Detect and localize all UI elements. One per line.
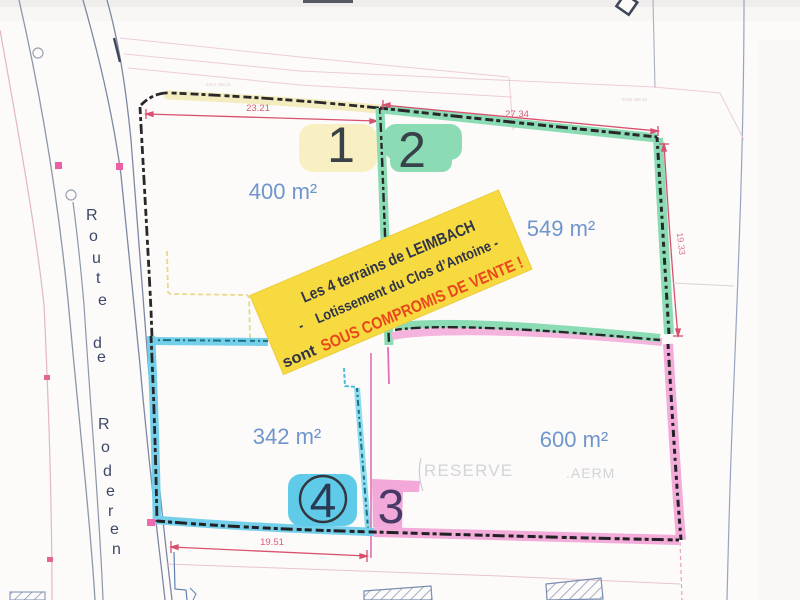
svg-text:o: o xyxy=(101,439,110,456)
svg-text:23.21: 23.21 xyxy=(246,103,270,114)
svg-text:e: e xyxy=(97,349,106,366)
svg-text:342 m²: 342 m² xyxy=(253,424,321,449)
svg-text:1: 1 xyxy=(327,117,355,173)
svg-text:600 m²: 600 m² xyxy=(540,427,608,452)
svg-text:e: e xyxy=(106,483,115,500)
svg-text:R: R xyxy=(86,207,98,224)
svg-text:27.34: 27.34 xyxy=(505,109,529,120)
svg-text:n: n xyxy=(112,541,121,558)
svg-text:t: t xyxy=(96,270,101,287)
svg-text:4: 4 xyxy=(310,475,337,528)
svg-text:u: u xyxy=(92,250,101,267)
svg-text:19.51: 19.51 xyxy=(260,537,284,548)
svg-text:e: e xyxy=(98,292,107,309)
svg-text:5414 358.21: 5414 358.21 xyxy=(206,82,232,87)
svg-text:3: 3 xyxy=(378,481,405,534)
svg-text:549 m²: 549 m² xyxy=(527,216,595,241)
svg-text:R: R xyxy=(98,416,110,433)
svg-text:e: e xyxy=(110,521,119,538)
svg-text:400 m²: 400 m² xyxy=(249,179,317,204)
svg-text:o: o xyxy=(89,228,98,245)
svg-text:RESERVE: RESERVE xyxy=(424,461,513,480)
svg-text:r: r xyxy=(108,503,114,520)
svg-text:5415 358.40: 5415 358.40 xyxy=(622,97,648,102)
svg-text:d: d xyxy=(103,463,112,480)
svg-text:.AERM: .AERM xyxy=(566,465,615,481)
svg-text:2: 2 xyxy=(398,122,426,178)
